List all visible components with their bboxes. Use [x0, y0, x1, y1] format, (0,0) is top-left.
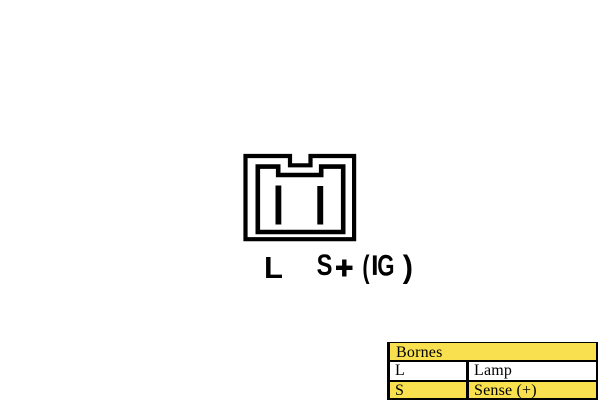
svg-text:(: ( — [362, 250, 369, 285]
svg-text:): ) — [403, 249, 413, 284]
svg-text:S: S — [317, 248, 333, 281]
svg-text:G: G — [377, 248, 394, 282]
